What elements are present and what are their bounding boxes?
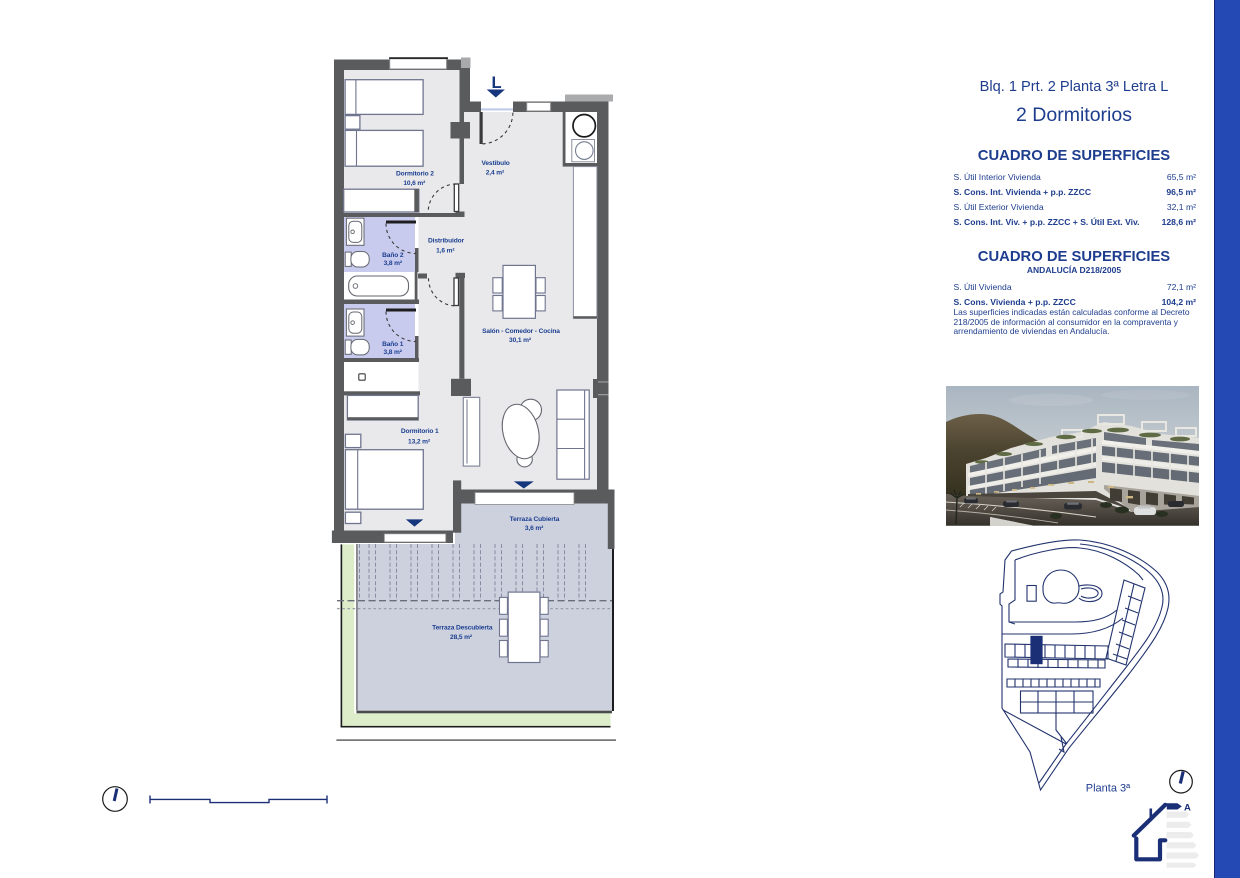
svg-text:30,1 m²: 30,1 m² bbox=[509, 337, 532, 344]
svg-text:Salón - Comedor - Cocina: Salón - Comedor - Cocina bbox=[482, 328, 560, 335]
svg-text:3,6 m²: 3,6 m² bbox=[525, 525, 544, 532]
svg-text:13,2 m²: 13,2 m² bbox=[408, 439, 431, 446]
svg-text:3,8 m²: 3,8 m² bbox=[384, 260, 403, 267]
svg-text:Terraza Cubierta: Terraza Cubierta bbox=[510, 516, 560, 523]
svg-text:Terraza Descubierta: Terraza Descubierta bbox=[432, 625, 493, 632]
svg-text:Baño 1: Baño 1 bbox=[382, 341, 404, 348]
svg-text:L: L bbox=[491, 74, 501, 92]
svg-text:Baño 2: Baño 2 bbox=[382, 252, 404, 259]
svg-text:Distribuidor: Distribuidor bbox=[428, 238, 464, 245]
svg-text:A: A bbox=[1184, 802, 1191, 813]
svg-text:Vestibulo: Vestibulo bbox=[481, 160, 509, 167]
svg-text:10,6 m²: 10,6 m² bbox=[403, 180, 426, 187]
svg-text:3,8 m²: 3,8 m² bbox=[384, 349, 403, 356]
svg-text:1,6 m²: 1,6 m² bbox=[436, 248, 455, 255]
svg-text:Dormitorio 2: Dormitorio 2 bbox=[396, 171, 434, 178]
svg-text:2,4 m²: 2,4 m² bbox=[486, 169, 505, 176]
svg-text:Dormitorio 1: Dormitorio 1 bbox=[401, 428, 439, 435]
svg-text:28,5 m²: 28,5 m² bbox=[450, 634, 473, 641]
